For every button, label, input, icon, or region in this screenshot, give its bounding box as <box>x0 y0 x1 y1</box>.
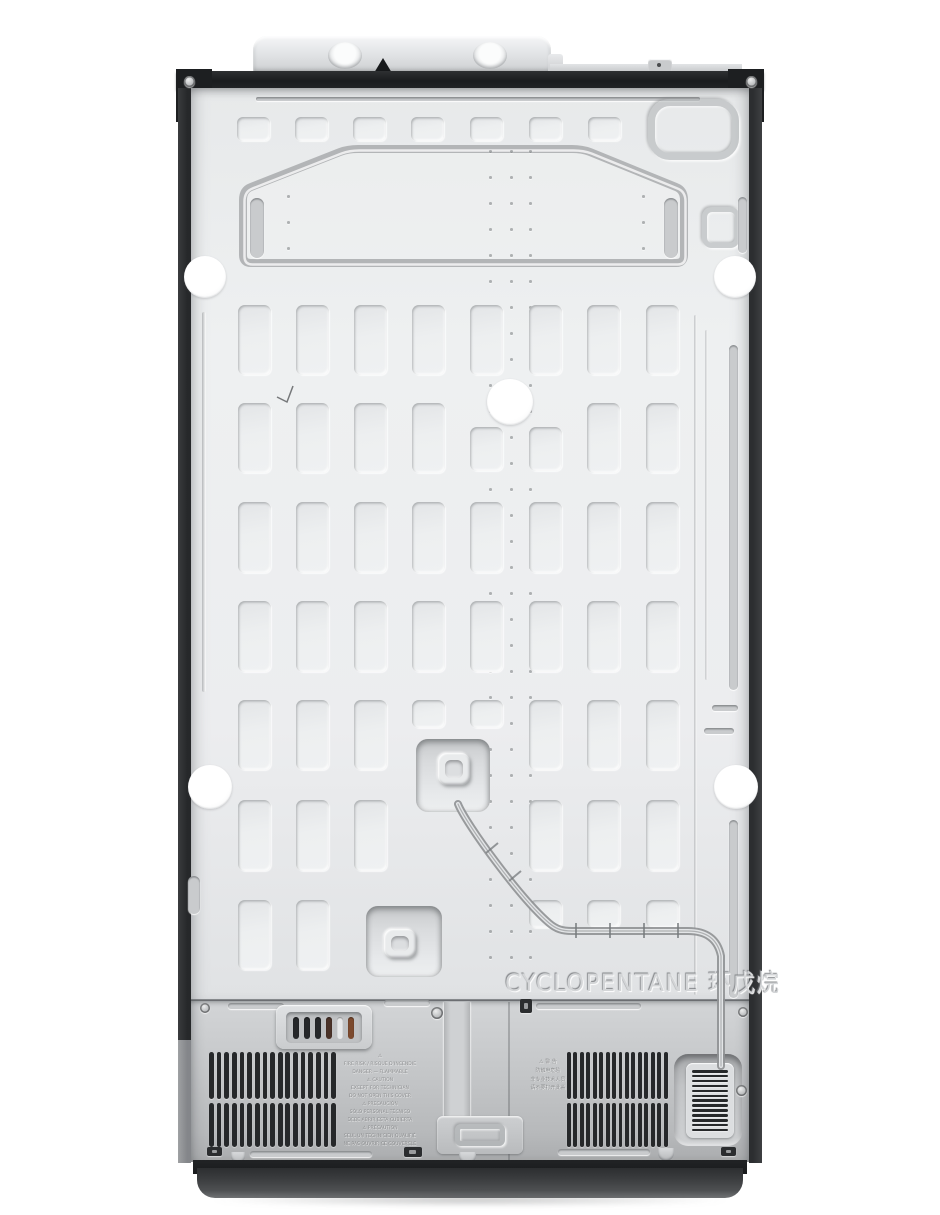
screw <box>184 76 195 87</box>
screw <box>431 1007 443 1019</box>
refrigerant-pipe <box>0 0 940 1215</box>
refrigerator-back-photo: CYCLOPENTANE 环戊烷 ⚠FIRE RISK / RISQUE D'I… <box>0 0 940 1215</box>
screw <box>746 76 757 87</box>
screw <box>738 1007 748 1017</box>
screw <box>200 1003 210 1013</box>
screw <box>736 1085 747 1096</box>
